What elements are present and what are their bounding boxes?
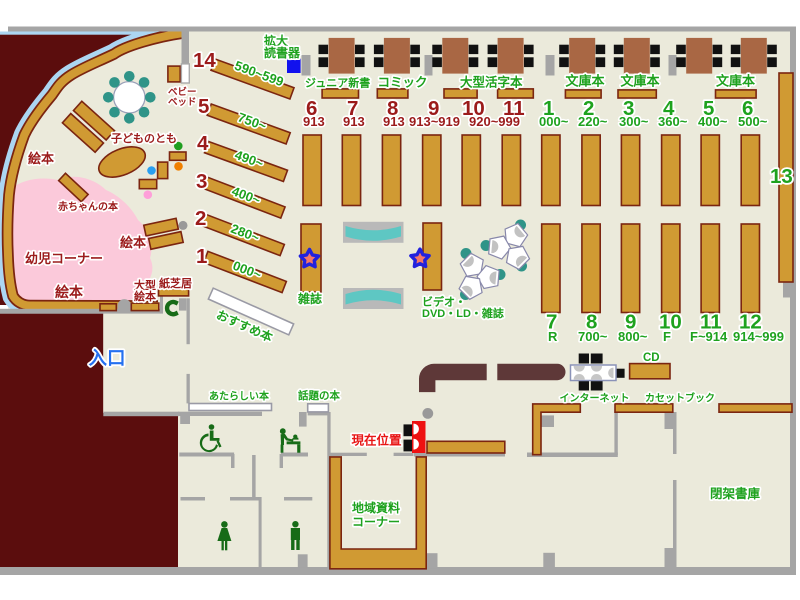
svg-text:000~: 000~: [539, 114, 569, 129]
svg-text:大型活字本: 大型活字本: [460, 75, 523, 90]
svg-text:幼児コーナー: 幼児コーナー: [25, 251, 103, 266]
svg-text:地域資料: 地域資料: [352, 500, 400, 515]
svg-text:400~: 400~: [698, 114, 728, 129]
svg-text:話題の本: 話題の本: [298, 389, 340, 402]
svg-text:ビデオ・: ビデオ・: [422, 295, 466, 309]
svg-text:絵本: 絵本: [28, 151, 54, 166]
svg-text:5: 5: [198, 95, 209, 118]
svg-text:ジュニア新書: ジュニア新書: [305, 76, 370, 90]
svg-text:入口: 入口: [89, 348, 126, 369]
svg-text:R: R: [548, 329, 558, 344]
svg-text:現在位置: 現在位置: [352, 433, 403, 448]
svg-text:文庫本: 文庫本: [621, 74, 660, 89]
svg-text:914~999: 914~999: [733, 329, 784, 344]
svg-text:読書器: 読書器: [264, 45, 301, 60]
svg-text:インターネット: インターネット: [560, 393, 630, 405]
svg-text:920~999: 920~999: [469, 114, 520, 129]
svg-text:F~914: F~914: [690, 329, 728, 344]
svg-text:14: 14: [193, 49, 216, 72]
svg-text:コーナー: コーナー: [352, 515, 400, 529]
svg-text:800~: 800~: [618, 329, 648, 344]
svg-text:カセットブック: カセットブック: [645, 392, 715, 405]
svg-text:3: 3: [196, 170, 207, 193]
svg-text:絵本: 絵本: [55, 284, 84, 300]
svg-text:360~: 360~: [658, 114, 688, 129]
svg-text:2: 2: [195, 207, 206, 230]
svg-text:文庫本: 文庫本: [566, 74, 605, 89]
svg-text:絵本: 絵本: [120, 235, 146, 250]
svg-text:あたらしい本: あたらしい本: [209, 390, 270, 403]
svg-text:13: 13: [770, 165, 793, 188]
svg-text:300~: 300~: [619, 114, 649, 129]
svg-text:913: 913: [303, 114, 325, 129]
svg-text:DVD・LD・雑誌: DVD・LD・雑誌: [422, 306, 504, 320]
svg-text:913~919: 913~919: [409, 114, 460, 129]
svg-text:雑誌: 雑誌: [297, 291, 322, 306]
svg-text:大型: 大型: [134, 278, 156, 292]
svg-text:4: 4: [197, 132, 209, 155]
svg-text:閉架書庫: 閉架書庫: [710, 486, 761, 501]
svg-text:文庫本: 文庫本: [716, 74, 755, 89]
svg-text:500~: 500~: [738, 114, 768, 129]
svg-text:913: 913: [343, 114, 365, 129]
svg-text:CD: CD: [643, 352, 660, 364]
svg-text:F: F: [663, 329, 671, 344]
svg-text:コミック: コミック: [378, 76, 428, 90]
svg-text:700~: 700~: [578, 329, 608, 344]
svg-text:220~: 220~: [578, 114, 608, 129]
svg-text:赤ちゃんの本: 赤ちゃんの本: [58, 200, 119, 213]
svg-text:913: 913: [383, 114, 405, 129]
svg-text:1: 1: [196, 245, 207, 268]
svg-text:ベッド: ベッド: [168, 97, 197, 108]
svg-text:絵本: 絵本: [134, 289, 156, 303]
svg-text:子どものとも: 子どものとも: [111, 132, 177, 145]
svg-text:紙芝居: 紙芝居: [159, 276, 192, 290]
